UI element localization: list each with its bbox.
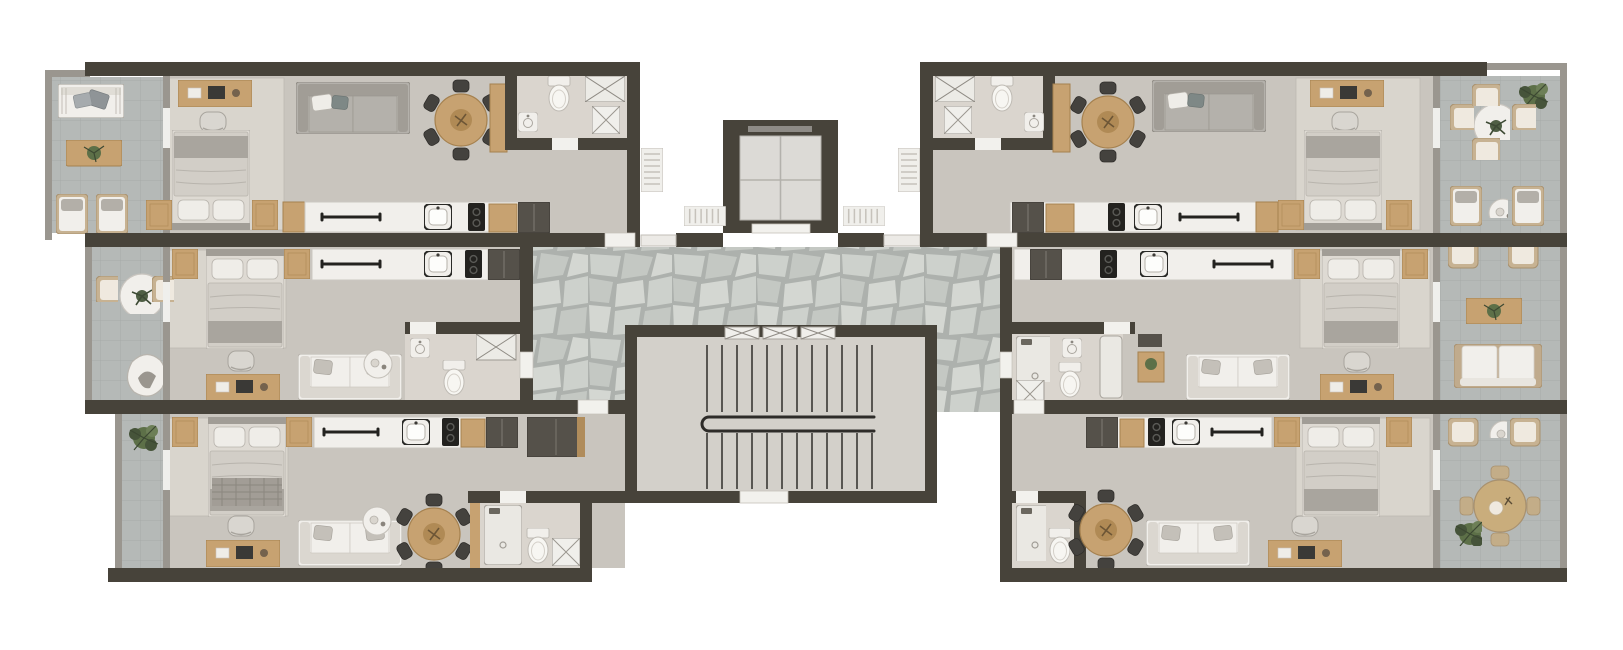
desk-chair — [1292, 516, 1318, 536]
nightstand — [1294, 249, 1320, 279]
side-table — [364, 350, 392, 378]
lounge-chair — [56, 194, 88, 234]
washbasin — [518, 112, 538, 132]
fridge — [486, 417, 518, 448]
wicker-armchair — [1510, 418, 1540, 446]
bathtub — [1100, 336, 1122, 398]
shower — [476, 334, 516, 360]
floor-plan — [0, 0, 1623, 650]
kitchen-right-middle — [1014, 249, 1292, 280]
kitchen-left-top — [283, 202, 550, 233]
desk — [206, 540, 280, 567]
sofa — [1152, 80, 1266, 132]
bathroom-right-middle — [1012, 322, 1135, 408]
nightstand — [172, 417, 198, 447]
nightstand — [284, 249, 310, 279]
entry-door-left-middle — [520, 352, 533, 378]
entry-door-right-middle — [1000, 352, 1012, 378]
fridge — [488, 249, 520, 280]
entry-door-right-bottom — [1014, 400, 1044, 414]
desk — [206, 374, 280, 401]
nightstand — [1386, 200, 1412, 230]
radiator — [898, 148, 920, 192]
desk-chair — [228, 516, 254, 536]
kitchen-right-top — [1010, 202, 1278, 233]
shower — [585, 76, 625, 102]
washbasin — [1062, 338, 1082, 358]
bathroom-door — [410, 322, 436, 334]
balcony-right-column — [1433, 63, 1567, 568]
plant — [1145, 358, 1157, 370]
fridge — [518, 202, 550, 233]
cabinet — [489, 204, 517, 232]
washbasin — [410, 338, 430, 358]
fridge — [1012, 202, 1044, 233]
cooktop — [465, 250, 482, 278]
kitchen-sink — [424, 251, 452, 277]
nightstand — [1274, 417, 1300, 447]
kitchen-sink — [1140, 251, 1168, 277]
cooktop — [1148, 418, 1165, 446]
desk — [1310, 80, 1384, 107]
side-table — [363, 507, 391, 535]
cooktop — [1108, 203, 1125, 231]
outdoor-coffee-table — [66, 140, 122, 166]
desk-chair — [1332, 112, 1358, 132]
plaid-throw — [212, 478, 282, 506]
washbasin — [1024, 112, 1044, 132]
hall-wall — [838, 233, 884, 247]
double-bed — [206, 249, 284, 349]
stair-windows — [725, 327, 835, 339]
wardrobe — [527, 417, 585, 457]
desk-chair — [1344, 352, 1370, 372]
bathroom-door — [1104, 322, 1130, 334]
toilet — [1059, 362, 1081, 397]
entry-door-left-top — [605, 233, 635, 247]
shelf — [1138, 334, 1162, 347]
nightstand — [1278, 200, 1304, 230]
kitchen-sink — [402, 419, 430, 445]
toilet — [1049, 528, 1071, 563]
balcony-left-bottom — [115, 414, 163, 568]
hall-window-sill — [641, 235, 676, 246]
entry-door-left-bottom — [578, 400, 608, 414]
outdoor-loveseat — [1454, 344, 1542, 388]
sofa — [1146, 520, 1250, 566]
bathroom-door — [552, 138, 578, 150]
bathroom-right-bottom — [1012, 491, 1086, 568]
double-bed — [1304, 130, 1382, 230]
elevator — [723, 120, 838, 233]
bench-sofa — [58, 84, 124, 118]
cabinet — [1120, 419, 1144, 447]
wicker-armchair — [1448, 418, 1478, 446]
bathroom-left-bottom — [468, 491, 592, 568]
floor-plan-canvas — [0, 0, 1623, 650]
bathroom-door — [1016, 491, 1038, 503]
lounge-chair — [1512, 186, 1544, 226]
vanity — [470, 503, 480, 568]
desk — [1268, 540, 1342, 567]
sofa — [1186, 354, 1290, 400]
sofa — [296, 82, 410, 134]
nightstand — [1402, 249, 1428, 279]
hall-window-sill — [884, 235, 920, 246]
desk — [178, 80, 252, 107]
right-wing — [920, 62, 1567, 582]
cooktop — [468, 203, 485, 231]
fridge — [1030, 249, 1062, 280]
kitchen-left-middle — [312, 249, 520, 280]
kitchen-sink — [1134, 204, 1162, 230]
balcony-left-top — [45, 70, 163, 240]
cabinet — [1046, 204, 1074, 232]
toilet — [548, 76, 570, 111]
double-bed — [172, 130, 250, 230]
elevator-door-sill — [752, 224, 810, 233]
radiator — [641, 148, 663, 192]
bathroom-left-middle — [405, 322, 521, 400]
cabinet — [461, 419, 485, 447]
washing-machine — [944, 106, 972, 134]
nightstand — [286, 417, 312, 447]
stairwell — [625, 325, 937, 503]
shower — [484, 505, 522, 565]
lounge-chair — [1450, 186, 1482, 226]
kitchen-sink — [424, 204, 452, 230]
toilet — [991, 76, 1013, 111]
bathroom-door — [975, 138, 1001, 150]
outdoor-coffee-table — [1466, 298, 1522, 324]
bathroom-door — [500, 491, 526, 503]
nightstand — [146, 200, 172, 230]
washing-machine — [552, 538, 580, 566]
sideboard — [1053, 84, 1070, 152]
washing-machine — [592, 106, 620, 134]
desk — [1320, 374, 1394, 401]
toilet — [527, 528, 549, 563]
cabinet — [283, 202, 305, 232]
cooktop — [1100, 250, 1117, 278]
radiator — [684, 206, 726, 226]
nightstand — [1386, 417, 1412, 447]
sideboard — [490, 84, 507, 152]
hall-wall — [676, 233, 723, 247]
double-bed — [1322, 249, 1400, 349]
shower — [935, 76, 975, 102]
desk-chair — [200, 112, 226, 132]
kitchen-right-bottom — [1086, 417, 1272, 448]
kitchen-left-bottom — [314, 417, 518, 448]
toilet — [443, 360, 465, 395]
radiator — [843, 206, 885, 226]
entry-door-right-top — [987, 233, 1017, 247]
cooktop — [442, 418, 459, 446]
lounge-chair — [96, 194, 128, 234]
organic-armchair — [127, 354, 165, 396]
kitchen-sink — [1172, 419, 1200, 445]
stair-door — [740, 491, 788, 503]
nightstand — [252, 200, 278, 230]
cabinet — [1256, 202, 1278, 232]
fridge — [1086, 417, 1118, 448]
elevator-vent — [748, 126, 812, 132]
double-bed — [1302, 417, 1380, 517]
desk-chair — [228, 351, 254, 371]
nightstand — [172, 249, 198, 279]
stairwell-floor — [637, 337, 925, 491]
